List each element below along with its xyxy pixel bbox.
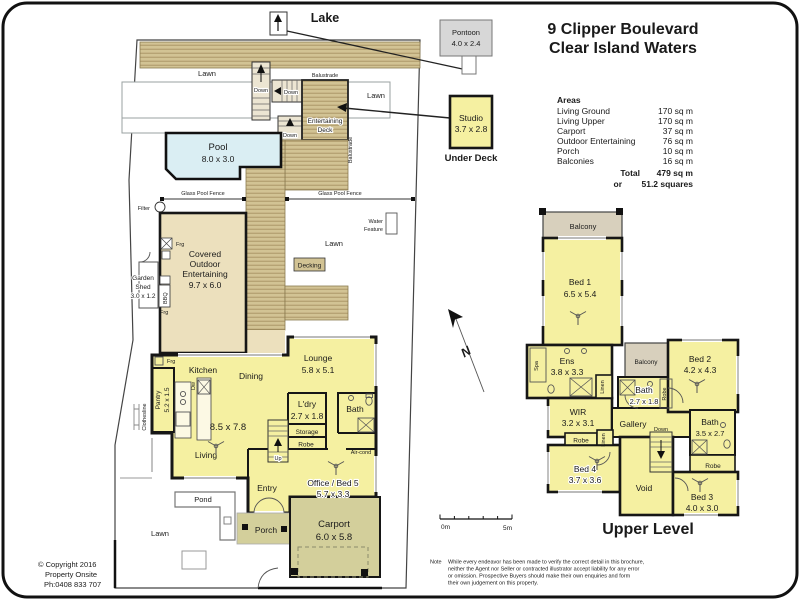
lawn-mid-label: Lawn: [325, 239, 343, 248]
porch: Porch: [237, 513, 290, 544]
area-row-value: 76 sq m: [663, 136, 693, 146]
ldry-label: L'dry: [298, 399, 317, 409]
down-label-2: Down: [284, 90, 298, 96]
bed2-label: Bed 2: [689, 354, 711, 364]
frg-bottom-label: Frg: [160, 310, 168, 316]
pond-label: Pond: [194, 495, 212, 504]
bed2-size: 4.2 x 4.3: [684, 365, 717, 375]
lawn-right-label: Lawn: [367, 91, 385, 100]
floorplan-drawing: Pontoon 4.0 x 2.4 Down Down Down: [0, 0, 800, 600]
deck-infill: [246, 330, 285, 353]
entertaining-deck-label-2: Deck: [318, 127, 334, 134]
copyright: © Copyright 2016 Property Onsite Ph:0408…: [38, 560, 101, 589]
area-row-label: Balconies: [557, 156, 594, 166]
lawn-top-label: Lawn: [198, 69, 216, 78]
down-upper-label: Down: [654, 427, 668, 433]
robe-hall-label: Robe: [573, 438, 589, 445]
note-line: neither the Agent nor Seller or contract…: [448, 567, 640, 573]
decking-label: Decking: [298, 263, 322, 270]
carport-label: Carport: [318, 519, 350, 530]
lounge-size: 5.8 x 5.1: [302, 365, 335, 375]
void-label: Void: [636, 483, 653, 493]
area-row-label: Living Upper: [557, 116, 605, 126]
dining-label: Dining: [239, 371, 263, 381]
ens-size: 3.8 x 3.3: [551, 367, 584, 377]
jetty: [270, 12, 287, 35]
water-feature-label-2: Feature: [364, 227, 383, 233]
area-row-label: Outdoor Entertaining: [557, 136, 636, 146]
bath1-label: Bath: [635, 385, 653, 395]
entertaining-deck-label-1: Entertaining: [308, 118, 343, 125]
entry-label: Entry: [257, 483, 278, 493]
area-row-value: 10 sq m: [663, 146, 693, 156]
linen-ens-label: Linen: [600, 380, 606, 393]
aircond-label: Air-cond: [351, 450, 371, 456]
bed3-size: 4.0 x 3.0: [686, 503, 719, 513]
bath-label: Bath: [346, 404, 364, 414]
carport: Carport 6.0 x 5.8: [290, 497, 380, 577]
balcony-mid-label: Balcony: [634, 359, 658, 366]
gallery-label: Gallery: [620, 419, 648, 429]
bed3-label: Bed 3: [691, 492, 713, 502]
down-label-3: Down: [283, 133, 297, 139]
copyright-line: Ph:0408 833 707: [44, 580, 101, 589]
note-line: or omission. Prospective Buyers should m…: [448, 574, 631, 580]
office-size: 5.7 x 3.3: [317, 489, 350, 499]
garden-bed: [182, 551, 206, 569]
area-row-value: 16 sq m: [663, 156, 693, 166]
stairs-deck-2: Down: [272, 80, 302, 102]
bed2-room: [668, 340, 738, 412]
fence-right-label: Glass Pool Fence: [318, 191, 361, 197]
robe-bath1-label: Robe: [662, 387, 668, 400]
covered-label-2: Outdoor: [190, 259, 221, 269]
area-row-label: Carport: [557, 126, 586, 136]
under-deck-label: Under Deck: [445, 153, 499, 164]
frg-kitchen-label: Frg: [167, 359, 175, 365]
balcony-top-label: Balcony: [570, 222, 597, 231]
pantry-label: Pantry: [155, 390, 162, 410]
area-row-label: Porch: [557, 146, 579, 156]
floorplan-page: Pontoon 4.0 x 2.4 Down Down Down: [0, 0, 800, 600]
pantry-size: 5.2 x 1.5: [164, 387, 171, 412]
area-row-label: Living Ground: [557, 106, 610, 116]
scale-end-label: 5m: [503, 525, 512, 532]
lake-label: Lake: [311, 11, 340, 25]
robe-bed3-label: Robe: [705, 463, 721, 470]
wir-size: 3.2 x 3.1: [562, 418, 595, 428]
filter-label: Filter: [138, 206, 150, 212]
kitchen-label: Kitchen: [189, 365, 218, 375]
pool-label: Pool: [208, 142, 227, 153]
balustrade-side-label: Balustrade: [348, 137, 354, 163]
bed1-size: 6.5 x 5.4: [564, 289, 597, 299]
stairs-up: Up: [268, 420, 288, 462]
robe-label: Robe: [298, 442, 314, 449]
areas-heading: Areas: [557, 95, 581, 105]
frg-top-label: Frg: [176, 242, 184, 248]
deck-wing-lower: [285, 286, 348, 320]
bbq-label: BBQ: [163, 292, 169, 304]
bed1-label: Bed 1: [569, 277, 591, 287]
office-label: Office / Bed 5: [307, 478, 359, 488]
shed-label-2: Shed: [135, 284, 151, 291]
bath1-size: 2.7 x 1.8: [630, 397, 659, 406]
covered-outdoor-area: Covered Outdoor Entertaining 9.7 x 6.0 F…: [159, 213, 246, 353]
pool-filter-icon: [155, 202, 165, 212]
areas-or-value: 51.2 squares: [641, 179, 693, 189]
note-label: Note: [430, 560, 442, 566]
down-label-1: Down: [254, 88, 268, 94]
shed-label-1: Garden: [132, 275, 154, 282]
storage-label: Storage: [296, 429, 319, 436]
studio-label: Studio: [459, 113, 483, 123]
water-feature-label-1: Water: [369, 219, 384, 225]
lawn-bottom-label: Lawn: [151, 529, 169, 538]
area-row-value: 170 sq m: [658, 106, 693, 116]
area-row-value: 37 sq m: [663, 126, 693, 136]
note-line: While every endeavor has been made to ve…: [448, 560, 645, 566]
clothesline-label: Clothesline: [142, 403, 148, 430]
areas-total-label: Total: [620, 168, 640, 178]
dw-label: Dw: [191, 382, 197, 390]
porch-label: Porch: [255, 525, 277, 535]
bed4-size: 3.7 x 3.6: [569, 475, 602, 485]
stairs-down: [650, 432, 672, 472]
page-title-line2: Clear Island Waters: [549, 40, 697, 57]
stairs-deck-1: Down: [252, 62, 270, 120]
deck-wing-upper: [285, 140, 348, 190]
linen-hall-label: Linen: [601, 433, 607, 446]
note-line: their own judgement on this property.: [448, 581, 539, 587]
lounge-label: Lounge: [304, 353, 333, 363]
area-row-value: 170 sq m: [658, 116, 693, 126]
pool-size: 8.0 x 3.0: [202, 154, 235, 164]
covered-label-3: Entertaining: [182, 269, 228, 279]
main-size-label: 8.5 x 7.8: [210, 422, 246, 433]
boardwalk-deck: [140, 42, 420, 68]
ens-label: Ens: [560, 356, 575, 366]
upper-level-title: Upper Level: [602, 521, 694, 538]
deck-column: [246, 140, 285, 330]
pontoon-label: Pontoon: [452, 28, 480, 37]
copyright-line: © Copyright 2016: [38, 560, 96, 569]
decking-chip: Decking: [294, 258, 325, 271]
up-label: Up: [274, 456, 281, 462]
carport-size: 6.0 x 5.8: [316, 532, 352, 543]
studio-size: 3.7 x 2.8: [455, 124, 488, 134]
balustrade-top-label: Balustrade: [312, 73, 338, 79]
shed-size: 3.0 x 1.2: [131, 293, 156, 300]
spa-label: Spa: [534, 360, 540, 371]
page-title-line1: 9 Clipper Boulevard: [547, 21, 698, 38]
scale-start-label: 0m: [441, 524, 450, 531]
pontoon-size: 4.0 x 2.4: [452, 39, 481, 48]
areas-total-value: 479 sq m: [657, 168, 694, 178]
bed4-label: Bed 4: [574, 464, 596, 474]
bath2-size: 3.5 x 2.7: [696, 429, 725, 438]
wir-label: WIR: [570, 407, 587, 417]
living-label: Living: [195, 450, 217, 460]
bath2-label: Bath: [701, 417, 719, 427]
copyright-line: Property Onsite: [45, 570, 97, 579]
areas-or-label: or: [614, 179, 623, 189]
fence-left-label: Glass Pool Fence: [181, 191, 224, 197]
ldry-size: 2.7 x 1.8: [291, 411, 324, 421]
covered-size: 9.7 x 6.0: [189, 280, 222, 290]
covered-label-1: Covered: [189, 249, 221, 259]
